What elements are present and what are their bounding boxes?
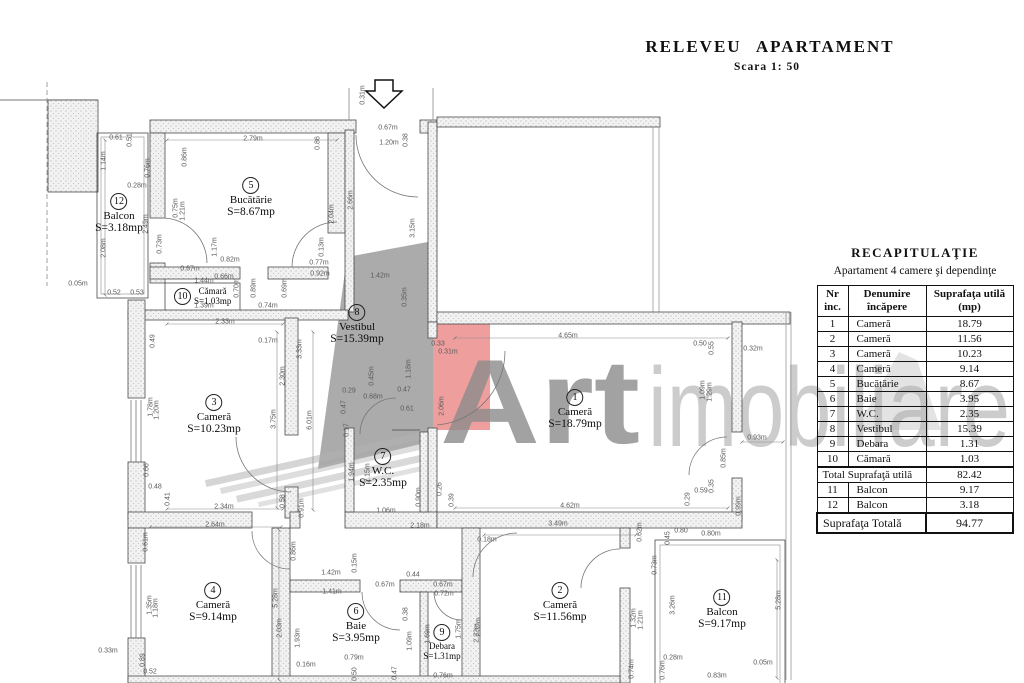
recap-table: Nrinc.DenumireîncăpereSuprafaţa utilă(mp… <box>816 285 1014 534</box>
recap-row: 10Cămară1.03 <box>817 452 1013 468</box>
recap-row: 7W.C.2.35 <box>817 407 1013 422</box>
watermark-art-text: Art <box>440 335 640 469</box>
recap-subheading: Apartament 4 camere şi dependinţe <box>816 265 1014 277</box>
recap-header-row: Nrinc.DenumireîncăpereSuprafaţa utilă(mp… <box>817 286 1013 317</box>
floor-plan-sheet: Art imobiliare <box>0 0 1024 683</box>
recap-heading: RECAPITULAŢIE <box>816 245 1014 261</box>
recap-row: 8Vestibul15.39 <box>817 422 1013 437</box>
recap-column-header: Nrinc. <box>817 286 848 317</box>
recap-row: 4Cameră9.14 <box>817 362 1013 377</box>
recap-total-utila-row: Total Suprafaţă utilă82.42 <box>817 467 1013 483</box>
entrance-arrow-icon <box>366 80 402 108</box>
page-title: RELEVEU APARTAMENT <box>645 37 894 57</box>
recap-column-header: Denumireîncăpere <box>848 286 926 317</box>
recap-row: 9Debara1.31 <box>817 437 1013 452</box>
recap-row: 12Balcon3.18 <box>817 498 1013 514</box>
recap-row: 11Balcon9.17 <box>817 483 1013 498</box>
recap-row: 6Baie3.95 <box>817 392 1013 407</box>
scale-label: Scara 1: 50 <box>734 61 800 73</box>
watermark-brush-streaks <box>205 431 433 517</box>
recap-column-header: Suprafaţa utilă(mp) <box>926 286 1013 317</box>
recap-row: 3Cameră10.23 <box>817 347 1013 362</box>
recap-row: 1Cameră18.79 <box>817 317 1013 332</box>
recap-total-row: Suprafaţa Totală94.77 <box>817 513 1013 533</box>
recap-panel: RECAPITULAŢIE Apartament 4 camere şi dep… <box>816 245 1014 534</box>
recap-row: 2Cameră11.56 <box>817 332 1013 347</box>
recap-row: 5Bucătărie8.67 <box>817 377 1013 392</box>
